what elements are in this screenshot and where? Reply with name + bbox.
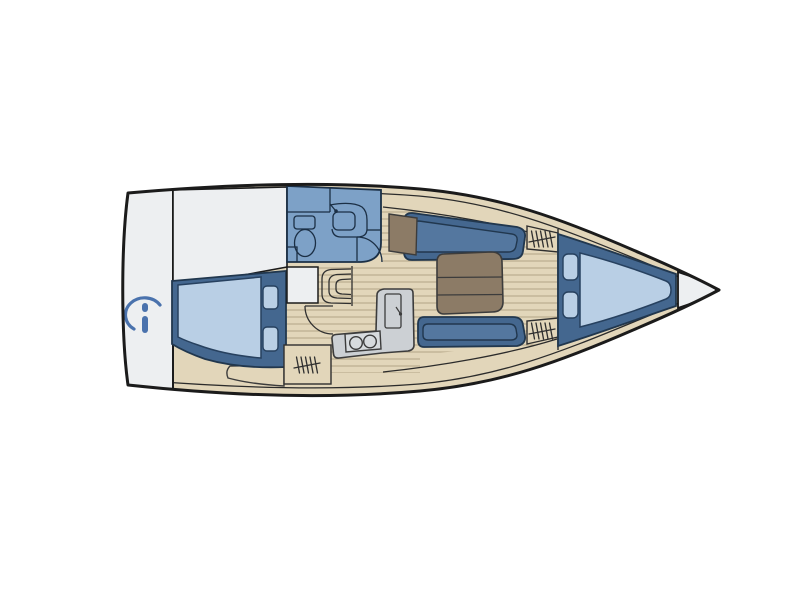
door-handle-icon (399, 312, 402, 315)
aft-berth-pillow (263, 286, 278, 309)
stove-burner (350, 337, 363, 350)
vberth-pillow (563, 292, 578, 318)
settee-headrest (389, 214, 417, 255)
aft-cabin-berth (172, 271, 286, 367)
boat-floor-plan (0, 0, 800, 600)
faucet-icon (334, 209, 338, 213)
salon-table (437, 252, 503, 314)
settee-port-cushion (423, 324, 517, 340)
head-compartment (287, 186, 382, 262)
floor-plan-canvas (0, 0, 800, 600)
table-leaf-line (437, 277, 503, 278)
table-leaf-line (437, 295, 503, 296)
stove-burner (364, 335, 377, 348)
transom-platform (123, 189, 173, 389)
vberth-pillow (563, 254, 578, 280)
aft-berth-pillow (263, 327, 278, 351)
companionway-landing (287, 267, 318, 303)
